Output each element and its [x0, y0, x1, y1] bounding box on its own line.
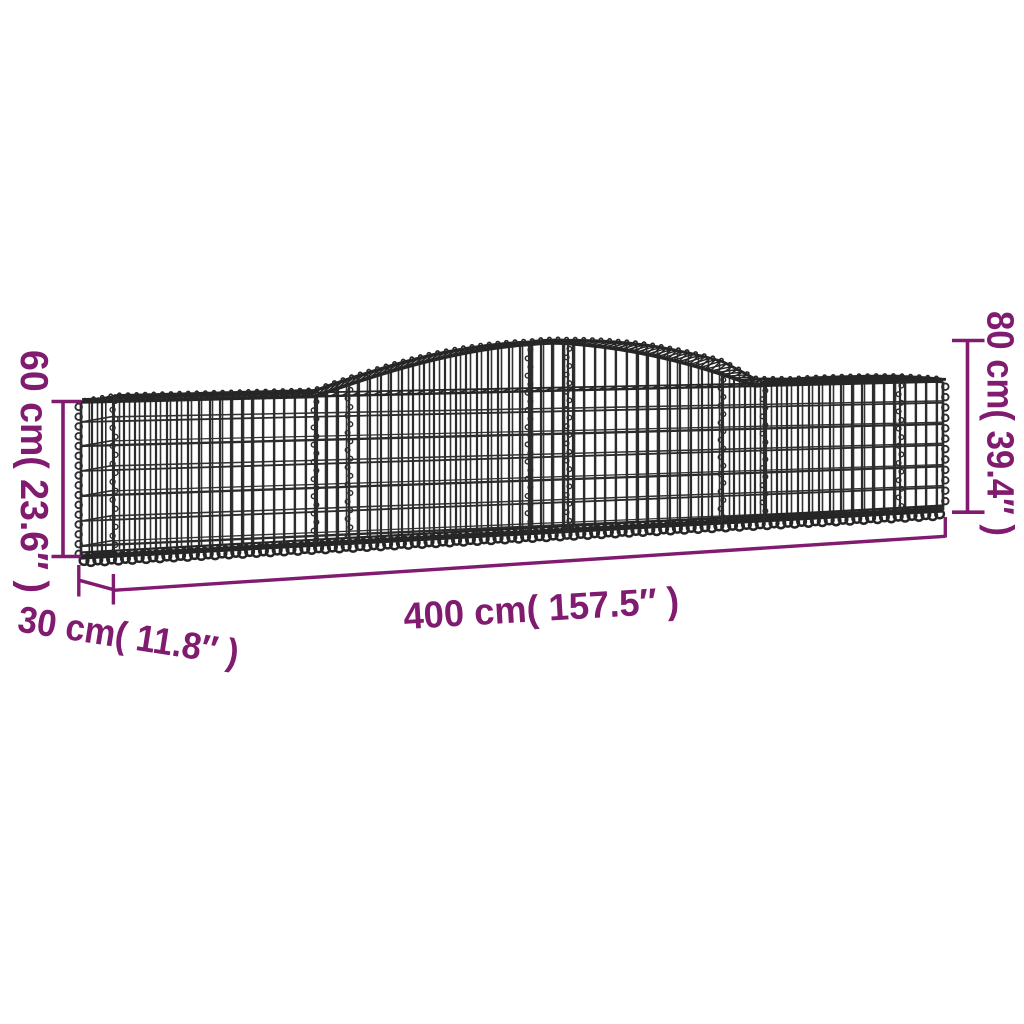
- svg-text:60 cm( 23.6″ ): 60 cm( 23.6″ ): [12, 350, 55, 593]
- svg-text:80 cm( 39.4″ ): 80 cm( 39.4″ ): [979, 311, 1021, 536]
